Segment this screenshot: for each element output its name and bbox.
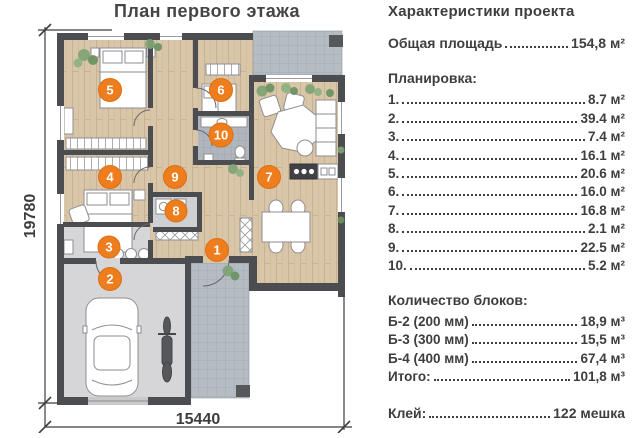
room-number: 3. bbox=[388, 129, 399, 144]
block-label: Б-2 (200 мм) bbox=[388, 314, 469, 329]
room-area-value: 8.7 м² bbox=[588, 92, 625, 107]
block-label: Б-4 (400 мм) bbox=[388, 351, 469, 366]
block-row: Б-4 (400 мм)67,4 м³ bbox=[388, 347, 625, 366]
blocks-list: Б-2 (200 мм)18,9 м³ Б-3 (300 мм)15,5 м³ … bbox=[388, 310, 625, 384]
room-area-row: 9.22.5 м² bbox=[388, 236, 625, 254]
room-number: 5. bbox=[388, 166, 399, 181]
room-marker-4: 4 bbox=[99, 166, 122, 189]
room-area-value: 16.8 м² bbox=[580, 203, 625, 218]
floor-plan-drawing: 19780 15440 1 2 3 4 5 6 7 8 9 10 bbox=[0, 0, 380, 433]
total-area-value: 154,8 м² bbox=[571, 35, 625, 51]
room-number: 9. bbox=[388, 240, 399, 255]
room-area-value: 2.1 м² bbox=[588, 221, 625, 236]
dot-leader bbox=[402, 102, 585, 104]
dot-leader bbox=[472, 324, 578, 326]
dot-leader bbox=[410, 268, 585, 270]
room5-dresser bbox=[64, 108, 73, 134]
terrace-top-right bbox=[253, 31, 343, 75]
room5-bed bbox=[91, 48, 155, 108]
room-area-row: 1.8.7 м² bbox=[388, 89, 625, 107]
room5-wardrobe bbox=[66, 138, 146, 149]
block-value: 18,9 м³ bbox=[580, 314, 625, 329]
living-coffee-table bbox=[297, 140, 313, 156]
svg-text:9: 9 bbox=[171, 170, 178, 185]
dot-leader bbox=[402, 121, 577, 123]
dot-leader bbox=[402, 213, 577, 215]
room6-shelf bbox=[206, 64, 240, 75]
room-area-value: 7.4 м² bbox=[588, 129, 625, 144]
terrace-bottom-right bbox=[191, 263, 250, 398]
block-total-row: Итого:101,8 м³ bbox=[388, 366, 625, 385]
block-value: 67,4 м³ bbox=[580, 351, 625, 366]
dot-leader bbox=[505, 46, 568, 48]
room-marker-8: 8 bbox=[165, 200, 187, 222]
room-area-value: 22.5 м² bbox=[580, 240, 625, 255]
room-marker-1: 1 bbox=[206, 239, 229, 262]
total-area-row: Общая площадь 154,8 м² bbox=[388, 35, 625, 51]
block-row: Б-3 (300 мм)15,5 м³ bbox=[388, 329, 625, 348]
room-marker-10: 10 bbox=[209, 123, 233, 147]
garage-car bbox=[83, 298, 141, 396]
entry-cabinet bbox=[240, 218, 252, 252]
svg-text:1: 1 bbox=[213, 243, 220, 258]
specs-panel: Характеристики проекта Общая площадь 154… bbox=[388, 3, 625, 421]
specs-heading: Характеристики проекта bbox=[388, 3, 625, 20]
svg-text:8: 8 bbox=[172, 204, 179, 219]
living-wall-unit bbox=[316, 100, 336, 156]
room-area-value: 16.0 м² bbox=[580, 184, 625, 199]
dimension-width-label: 15440 bbox=[176, 411, 221, 428]
room-marker-3: 3 bbox=[98, 236, 120, 258]
glue-label: Клей: bbox=[388, 405, 426, 421]
dot-leader bbox=[472, 361, 578, 363]
room-marker-2: 2 bbox=[99, 268, 122, 291]
block-label: Б-3 (300 мм) bbox=[388, 332, 469, 347]
room-area-list: 1.8.7 м² 2.39.4 м² 3.7.4 м² 4.16.1 м² 5.… bbox=[388, 89, 625, 273]
glue-value: 122 мешка bbox=[553, 405, 625, 421]
svg-text:6: 6 bbox=[217, 83, 224, 98]
room-area-value: 16.1 м² bbox=[580, 148, 625, 163]
room-number: 4. bbox=[388, 148, 399, 163]
room-area-row: 7.16.8 м² bbox=[388, 199, 625, 217]
dot-leader bbox=[402, 231, 585, 233]
room-area-row: 2.39.4 м² bbox=[388, 107, 625, 125]
dot-leader bbox=[429, 416, 550, 418]
room-area-row: 6.16.0 м² bbox=[388, 181, 625, 199]
svg-text:3: 3 bbox=[105, 240, 112, 255]
room-marker-9: 9 bbox=[164, 166, 187, 189]
dot-leader bbox=[472, 342, 578, 344]
dimension-height-label: 19780 bbox=[22, 194, 39, 239]
blocks-heading: Количество блоков: bbox=[388, 292, 625, 308]
room-marker-6: 6 bbox=[210, 79, 233, 102]
room-number: 7. bbox=[388, 203, 399, 218]
room-number: 6. bbox=[388, 184, 399, 199]
room-area-row: 10.5.2 м² bbox=[388, 255, 625, 273]
svg-text:5: 5 bbox=[106, 83, 113, 98]
block-row: Б-2 (200 мм)18,9 м³ bbox=[388, 310, 625, 329]
room-area-value: 5.2 м² bbox=[588, 258, 625, 273]
block-value: 15,5 м³ bbox=[580, 332, 625, 347]
svg-text:7: 7 bbox=[265, 170, 272, 185]
dot-leader bbox=[402, 139, 585, 141]
room-area-value: 20.6 м² bbox=[580, 166, 625, 181]
room-number: 10. bbox=[388, 258, 407, 273]
svg-text:2: 2 bbox=[106, 272, 113, 287]
block-total-label: Итого: bbox=[388, 369, 431, 384]
dot-leader bbox=[402, 194, 577, 196]
floor-plan: 19780 15440 1 2 3 4 5 6 7 8 9 10 bbox=[0, 0, 380, 433]
room-area-row: 3.7.4 м² bbox=[388, 126, 625, 144]
glue-row: Клей: 122 мешка bbox=[388, 405, 625, 421]
dot-leader bbox=[434, 379, 570, 381]
room-area-row: 8.2.1 м² bbox=[388, 218, 625, 236]
block-total-value: 101,8 м³ bbox=[573, 369, 625, 384]
room-number: 8. bbox=[388, 221, 399, 236]
room-number: 2. bbox=[388, 111, 399, 126]
room-area-row: 4.16.1 м² bbox=[388, 144, 625, 162]
layout-heading: Планировка: bbox=[388, 70, 625, 86]
room-number: 1. bbox=[388, 92, 399, 107]
svg-text:4: 4 bbox=[106, 170, 114, 185]
total-area-label: Общая площадь bbox=[388, 35, 502, 51]
svg-text:10: 10 bbox=[214, 128, 228, 143]
room-marker-5: 5 bbox=[99, 79, 122, 102]
dot-leader bbox=[402, 250, 577, 252]
room-area-row: 5.20.6 м² bbox=[388, 163, 625, 181]
room-area-value: 39.4 м² bbox=[580, 111, 625, 126]
window-icon bbox=[88, 33, 124, 40]
dot-leader bbox=[402, 176, 577, 178]
dot-leader bbox=[402, 158, 577, 160]
room-marker-7: 7 bbox=[258, 166, 281, 189]
kitchen-counter bbox=[290, 164, 338, 179]
